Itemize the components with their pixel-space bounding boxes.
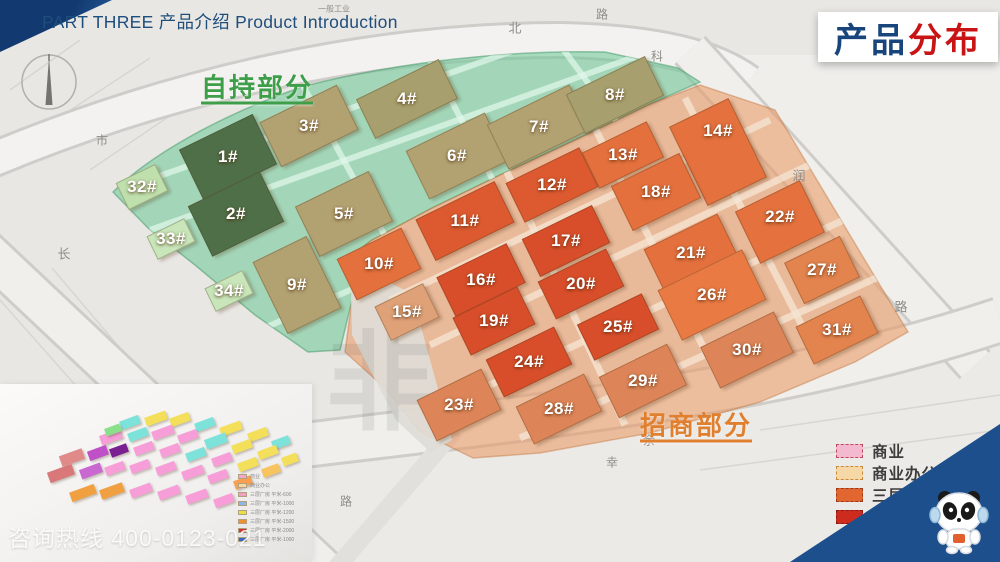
region-label-self-hold: 自持部分	[201, 68, 313, 105]
page-title-red: 分布	[908, 13, 982, 62]
legend-swatch	[836, 488, 863, 502]
building-label-24: 24#	[514, 352, 544, 372]
road-label: 路	[894, 297, 907, 316]
building-label-8: 8#	[605, 85, 625, 105]
building-label-1: 1#	[218, 147, 238, 167]
legend-label: 商业	[872, 440, 905, 462]
inset-building	[177, 429, 199, 444]
inset-legend-label: 商业办公	[250, 482, 270, 489]
inset-legend-swatch	[238, 492, 247, 497]
legend-swatch	[836, 466, 863, 480]
building-label-4: 4#	[397, 89, 417, 109]
inset-building	[204, 433, 228, 450]
building-label-33: 33#	[156, 229, 186, 249]
inset-building	[59, 448, 85, 467]
building-label-27: 27#	[807, 260, 837, 280]
building-label-10: 10#	[364, 254, 394, 274]
legend-item: 商业	[836, 440, 938, 461]
inset-building	[281, 453, 299, 467]
inset-building	[129, 459, 151, 474]
inset-legend-label: 商业	[250, 473, 260, 480]
road-label: 路	[596, 6, 608, 23]
building-label-5: 5#	[334, 204, 354, 224]
road-label: 润	[792, 166, 805, 185]
legend-swatch	[836, 444, 863, 458]
inset-building	[87, 445, 109, 461]
inset-building	[47, 464, 75, 483]
road-label: 市	[96, 132, 108, 149]
inset-building	[79, 463, 103, 480]
inset-building	[207, 469, 229, 484]
region-label-investment: 招商部分	[640, 406, 752, 443]
page-title: 产品分布	[818, 12, 998, 62]
building-label-7: 7#	[529, 117, 549, 137]
compass-icon	[20, 53, 78, 116]
building-label-31: 31#	[822, 320, 852, 340]
inset-building	[211, 452, 233, 467]
inset-legend-label: 三层厂房 平米-600	[250, 491, 291, 498]
building-label-15: 15#	[392, 302, 422, 322]
building-label-22: 22#	[765, 207, 795, 227]
inset-building	[257, 445, 279, 460]
inset-building	[213, 493, 235, 508]
inset-legend-swatch	[238, 501, 247, 506]
building-label-18: 18#	[641, 182, 671, 202]
inset-building	[104, 461, 126, 476]
inset-building	[185, 489, 209, 505]
inset-building	[237, 457, 259, 472]
hotline-text: 咨询热线 400-0123-021	[8, 519, 267, 553]
inset-building	[99, 482, 125, 500]
inset-building	[144, 411, 168, 427]
inset-legend-item: 三层厂房 平米-1200	[238, 508, 294, 517]
inset-building	[169, 412, 191, 427]
inset-legend-swatch	[238, 483, 247, 488]
road-label: 北	[508, 18, 521, 37]
inset-legend-swatch	[238, 474, 247, 479]
inset-building	[231, 439, 253, 454]
panda-mascot-icon	[924, 481, 994, 560]
building-label-11: 11#	[451, 211, 480, 231]
road-label: 幸	[606, 454, 618, 471]
building-label-16: 16#	[466, 270, 496, 290]
building-label-32: 32#	[127, 177, 157, 197]
building-label-6: 6#	[447, 146, 467, 166]
inset-building	[151, 425, 175, 441]
page-title-blue: 产品	[834, 13, 908, 62]
inset-legend-item: 三层厂房 平米-600	[238, 490, 294, 499]
building-label-21: 21#	[676, 243, 706, 263]
inset-building	[185, 447, 207, 462]
inset-building	[155, 461, 177, 476]
building-label-30: 30#	[732, 340, 762, 360]
inset-legend-swatch	[238, 510, 247, 515]
building-label-20: 20#	[566, 274, 596, 294]
inset-legend-label: 三层厂房 平米-1000	[250, 500, 294, 507]
inset-legend-label: 三层厂房 平米-1200	[250, 509, 294, 516]
building-label-9: 9#	[287, 275, 307, 295]
inset-building	[129, 483, 153, 499]
building-label-2: 2#	[226, 204, 246, 224]
building-label-12: 12#	[537, 175, 567, 195]
inset-building	[127, 427, 149, 442]
inset-building	[109, 443, 129, 458]
building-label-14: 14#	[703, 121, 733, 141]
inset-building	[157, 485, 181, 501]
building-label-34: 34#	[214, 281, 244, 301]
slide: 非 1#2#3#4#5#6#7#8#9#32#33#34#10#11#12#13…	[0, 0, 1000, 562]
road-label: 科	[651, 48, 663, 65]
inset-legend-item: 商业办公	[238, 481, 294, 490]
inset-building	[159, 443, 181, 458]
building-label-26: 26#	[697, 285, 727, 305]
building-label-29: 29#	[628, 371, 658, 391]
building-label-13: 13#	[608, 145, 638, 165]
building-label-28: 28#	[544, 399, 574, 419]
road-label: 路	[340, 493, 352, 510]
building-label-25: 25#	[603, 317, 633, 337]
inset-building	[119, 415, 141, 430]
page-header-title: PART THREE 产品介绍 Product Introduction	[42, 9, 398, 34]
building-label-17: 17#	[551, 231, 581, 251]
inset-legend-item: 商业	[238, 472, 294, 481]
road-label: 长	[57, 244, 70, 263]
inset-building	[133, 441, 155, 456]
inset-legend-item: 三层厂房 平米-1000	[238, 499, 294, 508]
building-label-23: 23#	[444, 395, 474, 415]
building-label-3: 3#	[299, 116, 319, 136]
inset-building	[194, 417, 216, 432]
inset-building	[69, 484, 97, 502]
building-label-19: 19#	[479, 311, 509, 331]
inset-building	[181, 465, 205, 481]
